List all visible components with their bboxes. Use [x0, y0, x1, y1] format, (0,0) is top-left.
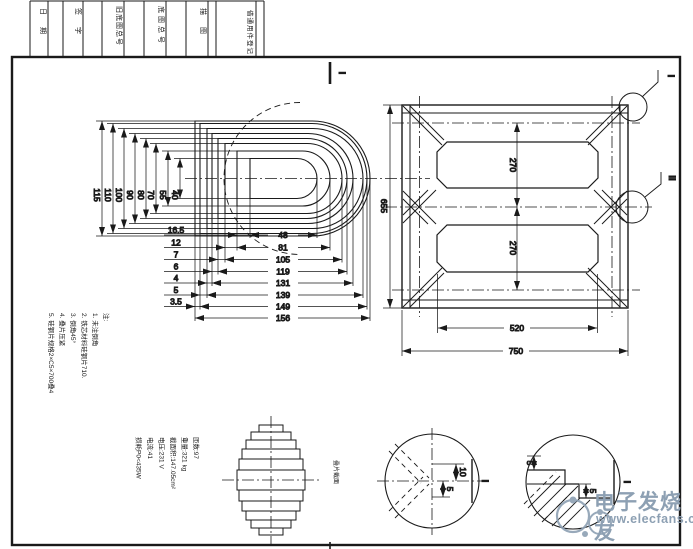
detail-circle-1: 10 5 I [377, 428, 490, 535]
dim-label: 110 [103, 188, 113, 202]
dim-label: 139 [276, 290, 290, 300]
dim-label: 131 [276, 278, 290, 288]
dim-label: 90 [125, 190, 135, 200]
dim-label: 16.5 [168, 225, 185, 235]
dim-label: 40 [170, 190, 180, 200]
dim-label: 5 [525, 461, 535, 466]
spec-line: 损耗P0<435W [132, 437, 144, 523]
dim-label: 149 [276, 302, 290, 312]
dim-label: 6 [174, 262, 179, 272]
core-view: 655 270 270 520 750 I II [379, 70, 677, 356]
spec-line: 重量:321 kg [178, 437, 190, 523]
spec-line: 电流:41 [144, 437, 156, 523]
stack-view-label: 叠片截面 [332, 460, 341, 500]
dim-label: 520 [510, 323, 524, 333]
coil-view: 115 110 100 90 80 70 55 40 16.5 12 7 6 4… [92, 62, 430, 323]
notes-header: 注: [100, 313, 111, 425]
detail-mark: I [665, 75, 676, 78]
drawing-linework: 115 110 100 90 80 70 55 40 16.5 12 7 6 4… [0, 0, 693, 549]
dim-label: 270 [508, 158, 518, 172]
dim-label: 5 [445, 487, 455, 492]
section-mark: I [336, 72, 347, 75]
dim-label: 105 [276, 255, 290, 265]
dim-label: 119 [276, 267, 290, 277]
lamination-stack [222, 416, 320, 544]
technical-notes: 注: 1. 未注倒角 2. 铁芯材料硅钢片710. 3. 倒角45° 4. 叠片… [45, 313, 111, 425]
dim-label: 70 [146, 190, 156, 200]
note-item: 1. 未注倒角 [89, 313, 100, 425]
dim-label: 4 [174, 273, 179, 283]
note-item: 3. 倒角45° [67, 313, 78, 425]
detail-mark: II [666, 175, 677, 180]
note-item: 2. 铁芯材料硅钢片710. [78, 313, 89, 425]
engineering-drawing-sheet: 115 110 100 90 80 70 55 40 16.5 12 7 6 4… [0, 0, 693, 549]
dim-label: 3.5 [170, 297, 182, 307]
titleblock-cell-register: 借通用件登记 [217, 2, 256, 59]
spec-line: 匝数:97 [190, 437, 202, 523]
detail-mark: I [479, 480, 490, 483]
dim-label: 55 [158, 190, 168, 200]
titleblock-cell-signature: 签字 [64, 2, 83, 62]
dim-label: 156 [276, 313, 290, 323]
dim-label: 115 [92, 188, 102, 202]
spec-list: 匝数:97 重量:321 kg 截面积:147.05cm² 电压:231 V 电… [132, 437, 201, 523]
dim-label: 80 [136, 190, 146, 200]
dim-label: 270 [508, 241, 518, 255]
titleblock-cell-traced: 描图 [187, 2, 208, 62]
dim-label: 7 [174, 250, 179, 260]
note-item: 4. 叠片压紧 [56, 313, 67, 425]
dim-label: 750 [509, 346, 523, 356]
dim-label: 5 [174, 285, 179, 295]
titleblock-cell-date: 日期 [31, 2, 48, 62]
dim-label: 81 [278, 243, 288, 253]
dim-label: 10 [458, 467, 468, 477]
detail-mark: I [621, 481, 632, 484]
note-item: 5. 硅钢片规格2×C5×700叠4 [45, 313, 56, 425]
spec-line: 截面积:147.05cm² [167, 437, 179, 523]
sheet-border [12, 57, 680, 549]
watermark-site: www.elecfans.com [596, 512, 693, 526]
titleblock-cell-tracing-no: 底图总号 [145, 2, 166, 60]
titleblock-cell-old-tracing-no: 旧底图总号 [103, 2, 124, 60]
dim-label: 12 [171, 238, 181, 248]
dim-label: 655 [379, 199, 389, 213]
spec-line: 电压:231 V [155, 437, 167, 523]
dim-label: 48 [278, 230, 288, 240]
dim-label: 100 [114, 188, 124, 202]
